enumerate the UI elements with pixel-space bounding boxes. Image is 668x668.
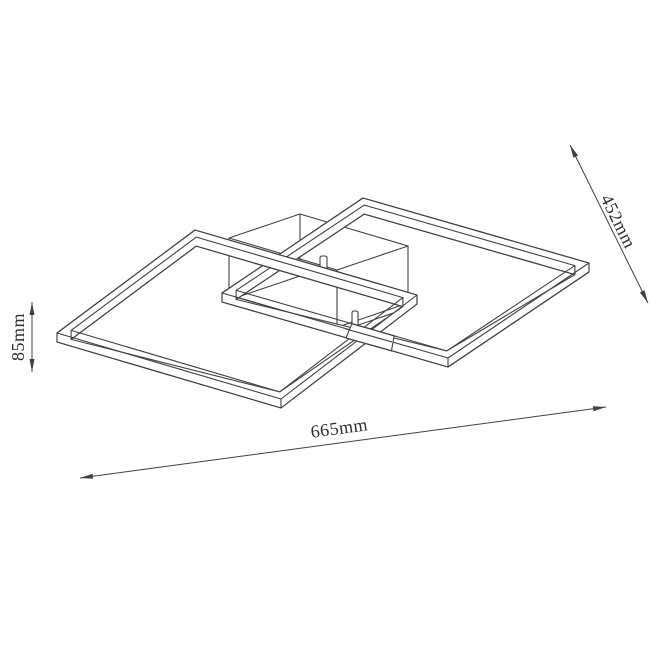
dimension-depth: 452mm <box>570 145 648 303</box>
drawing-canvas: 452mm 85mm 665mm <box>0 0 668 668</box>
dimension-length-arrow-right <box>593 406 606 411</box>
dimension-length: 665mm <box>80 406 606 479</box>
dimension-depth-arrow-end <box>640 290 648 303</box>
dimension-length-arrow-left <box>80 474 93 479</box>
dimension-height: 85mm <box>8 302 35 372</box>
dimension-depth-arrow-start <box>570 145 578 158</box>
dimension-height-label: 85mm <box>8 313 28 361</box>
dimension-height-arrow-bottom <box>30 359 35 372</box>
dimension-height-arrow-top <box>30 302 35 315</box>
dimension-depth-label: 452mm <box>597 191 640 251</box>
fixture-drawing: 452mm 85mm 665mm <box>0 0 668 668</box>
dimension-length-label: 665mm <box>309 414 369 442</box>
